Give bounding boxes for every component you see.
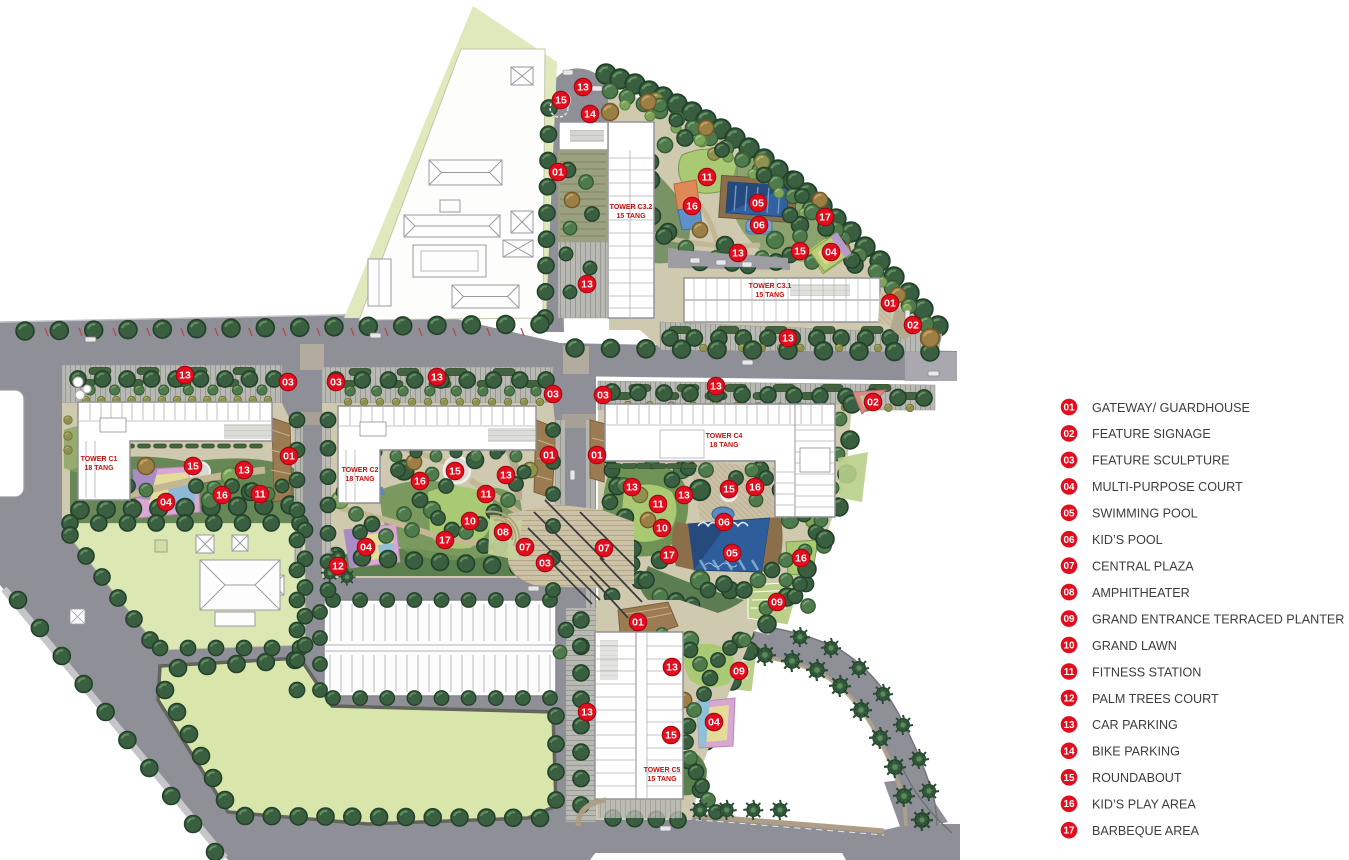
svg-text:03: 03	[282, 377, 294, 389]
svg-text:GATEWAY/ GUARDHOUSE: GATEWAY/ GUARDHOUSE	[1092, 401, 1250, 415]
svg-text:CENTRAL PLAZA: CENTRAL PLAZA	[1092, 560, 1194, 574]
svg-text:15 TANG: 15 TANG	[647, 776, 677, 783]
svg-text:13: 13	[238, 465, 250, 477]
svg-text:08: 08	[1063, 588, 1075, 599]
svg-text:13: 13	[732, 248, 744, 260]
svg-text:06: 06	[1063, 535, 1075, 546]
svg-text:FEATURE SCULPTURE: FEATURE SCULPTURE	[1092, 454, 1230, 468]
svg-text:10: 10	[656, 523, 668, 535]
svg-text:14: 14	[584, 109, 596, 121]
svg-text:07: 07	[1063, 561, 1075, 572]
svg-text:15 TANG: 15 TANG	[755, 292, 785, 299]
svg-text:15: 15	[555, 95, 567, 107]
svg-text:13: 13	[581, 279, 593, 291]
svg-text:13: 13	[431, 372, 443, 384]
svg-text:01: 01	[632, 617, 644, 629]
svg-text:15: 15	[794, 246, 806, 258]
svg-text:10: 10	[464, 516, 476, 528]
svg-text:18 TANG: 18 TANG	[709, 442, 739, 449]
svg-text:17: 17	[819, 212, 831, 224]
svg-text:01: 01	[543, 450, 555, 462]
svg-text:05: 05	[726, 548, 738, 560]
svg-text:FEATURE SIGNAGE: FEATURE SIGNAGE	[1092, 427, 1211, 441]
svg-text:07: 07	[598, 543, 610, 555]
svg-text:04: 04	[1063, 482, 1075, 493]
svg-text:13: 13	[500, 470, 512, 482]
svg-text:03: 03	[539, 558, 551, 570]
svg-text:02: 02	[907, 320, 919, 332]
svg-text:04: 04	[160, 497, 172, 509]
svg-text:01: 01	[591, 450, 603, 462]
svg-text:15: 15	[1063, 773, 1075, 784]
svg-text:18 TANG: 18 TANG	[345, 476, 375, 483]
svg-text:16: 16	[749, 482, 761, 494]
svg-text:03: 03	[597, 390, 609, 402]
svg-text:11: 11	[1064, 667, 1075, 678]
svg-text:09: 09	[771, 597, 783, 609]
svg-text:ROUNDABOUT: ROUNDABOUT	[1092, 771, 1182, 785]
svg-text:13: 13	[678, 490, 690, 502]
svg-text:04: 04	[825, 247, 837, 259]
svg-text:02: 02	[867, 397, 879, 409]
svg-text:KID’S POOL: KID’S POOL	[1092, 533, 1163, 547]
svg-text:15: 15	[665, 730, 677, 742]
svg-text:18 TANG: 18 TANG	[84, 465, 114, 472]
svg-text:10: 10	[1063, 641, 1075, 652]
svg-text:16: 16	[686, 201, 698, 213]
svg-text:15: 15	[449, 466, 461, 478]
svg-text:16: 16	[1063, 799, 1075, 810]
svg-text:03: 03	[547, 389, 559, 401]
svg-text:07: 07	[519, 542, 531, 554]
svg-text:16: 16	[795, 553, 807, 565]
svg-text:AMPHITHEATER: AMPHITHEATER	[1092, 586, 1190, 600]
svg-text:TOWER C5: TOWER C5	[644, 767, 681, 774]
svg-text:16: 16	[216, 490, 228, 502]
svg-text:09: 09	[1063, 614, 1075, 625]
svg-text:13: 13	[577, 82, 589, 94]
svg-text:15: 15	[187, 461, 199, 473]
svg-text:04: 04	[360, 542, 372, 554]
svg-text:MULTI-PURPOSE COURT: MULTI-PURPOSE COURT	[1092, 480, 1243, 494]
svg-text:01: 01	[884, 298, 896, 310]
svg-text:01: 01	[1063, 403, 1075, 414]
svg-text:11: 11	[652, 499, 663, 511]
svg-text:GRAND LAWN: GRAND LAWN	[1092, 639, 1177, 653]
svg-text:14: 14	[1063, 746, 1075, 757]
svg-text:16: 16	[414, 476, 426, 488]
svg-text:12: 12	[1063, 694, 1075, 705]
svg-text:13: 13	[581, 707, 593, 719]
svg-text:15: 15	[723, 484, 735, 496]
svg-text:11: 11	[254, 489, 265, 501]
svg-text:TOWER C2: TOWER C2	[342, 467, 379, 474]
svg-text:13: 13	[179, 370, 191, 382]
svg-text:05: 05	[752, 198, 764, 210]
svg-text:06: 06	[753, 220, 765, 232]
svg-text:BARBEQUE AREA: BARBEQUE AREA	[1092, 824, 1200, 838]
svg-text:04: 04	[708, 717, 720, 729]
svg-text:06: 06	[718, 517, 730, 529]
svg-text:09: 09	[733, 666, 745, 678]
svg-text:CAR PARKING: CAR PARKING	[1092, 718, 1178, 732]
svg-text:01: 01	[283, 451, 295, 463]
svg-text:TOWER C1: TOWER C1	[81, 456, 118, 463]
svg-text:15 TANG: 15 TANG	[616, 213, 646, 220]
svg-text:03: 03	[1063, 455, 1075, 466]
svg-text:01: 01	[552, 167, 564, 179]
svg-text:SWIMMING POOL: SWIMMING POOL	[1092, 507, 1198, 521]
svg-text:12: 12	[332, 561, 344, 573]
svg-text:TOWER C3.2: TOWER C3.2	[610, 204, 653, 211]
svg-text:13: 13	[666, 662, 678, 674]
svg-text:17: 17	[663, 550, 675, 562]
svg-text:03: 03	[330, 377, 342, 389]
svg-text:BIKE PARKING: BIKE PARKING	[1092, 745, 1180, 759]
svg-text:13: 13	[710, 381, 722, 393]
svg-text:PALM TREES COURT: PALM TREES COURT	[1092, 692, 1219, 706]
svg-text:KID’S PLAY AREA: KID’S PLAY AREA	[1092, 798, 1196, 812]
svg-text:TOWER C3.1: TOWER C3.1	[749, 283, 792, 290]
svg-text:17: 17	[1063, 826, 1075, 837]
svg-text:13: 13	[1063, 720, 1075, 731]
svg-text:13: 13	[782, 333, 794, 345]
svg-text:TOWER C4: TOWER C4	[706, 433, 743, 440]
svg-text:11: 11	[480, 489, 491, 501]
svg-text:13: 13	[626, 482, 638, 494]
svg-text:08: 08	[497, 527, 509, 539]
svg-text:11: 11	[701, 172, 712, 184]
svg-text:GRAND ENTRANCE TERRACED PLANTE: GRAND ENTRANCE TERRACED PLANTER	[1092, 612, 1344, 626]
svg-text:05: 05	[1063, 508, 1075, 519]
svg-text:02: 02	[1063, 429, 1075, 440]
svg-text:17: 17	[439, 535, 451, 547]
svg-text:FITNESS STATION: FITNESS STATION	[1092, 665, 1201, 679]
